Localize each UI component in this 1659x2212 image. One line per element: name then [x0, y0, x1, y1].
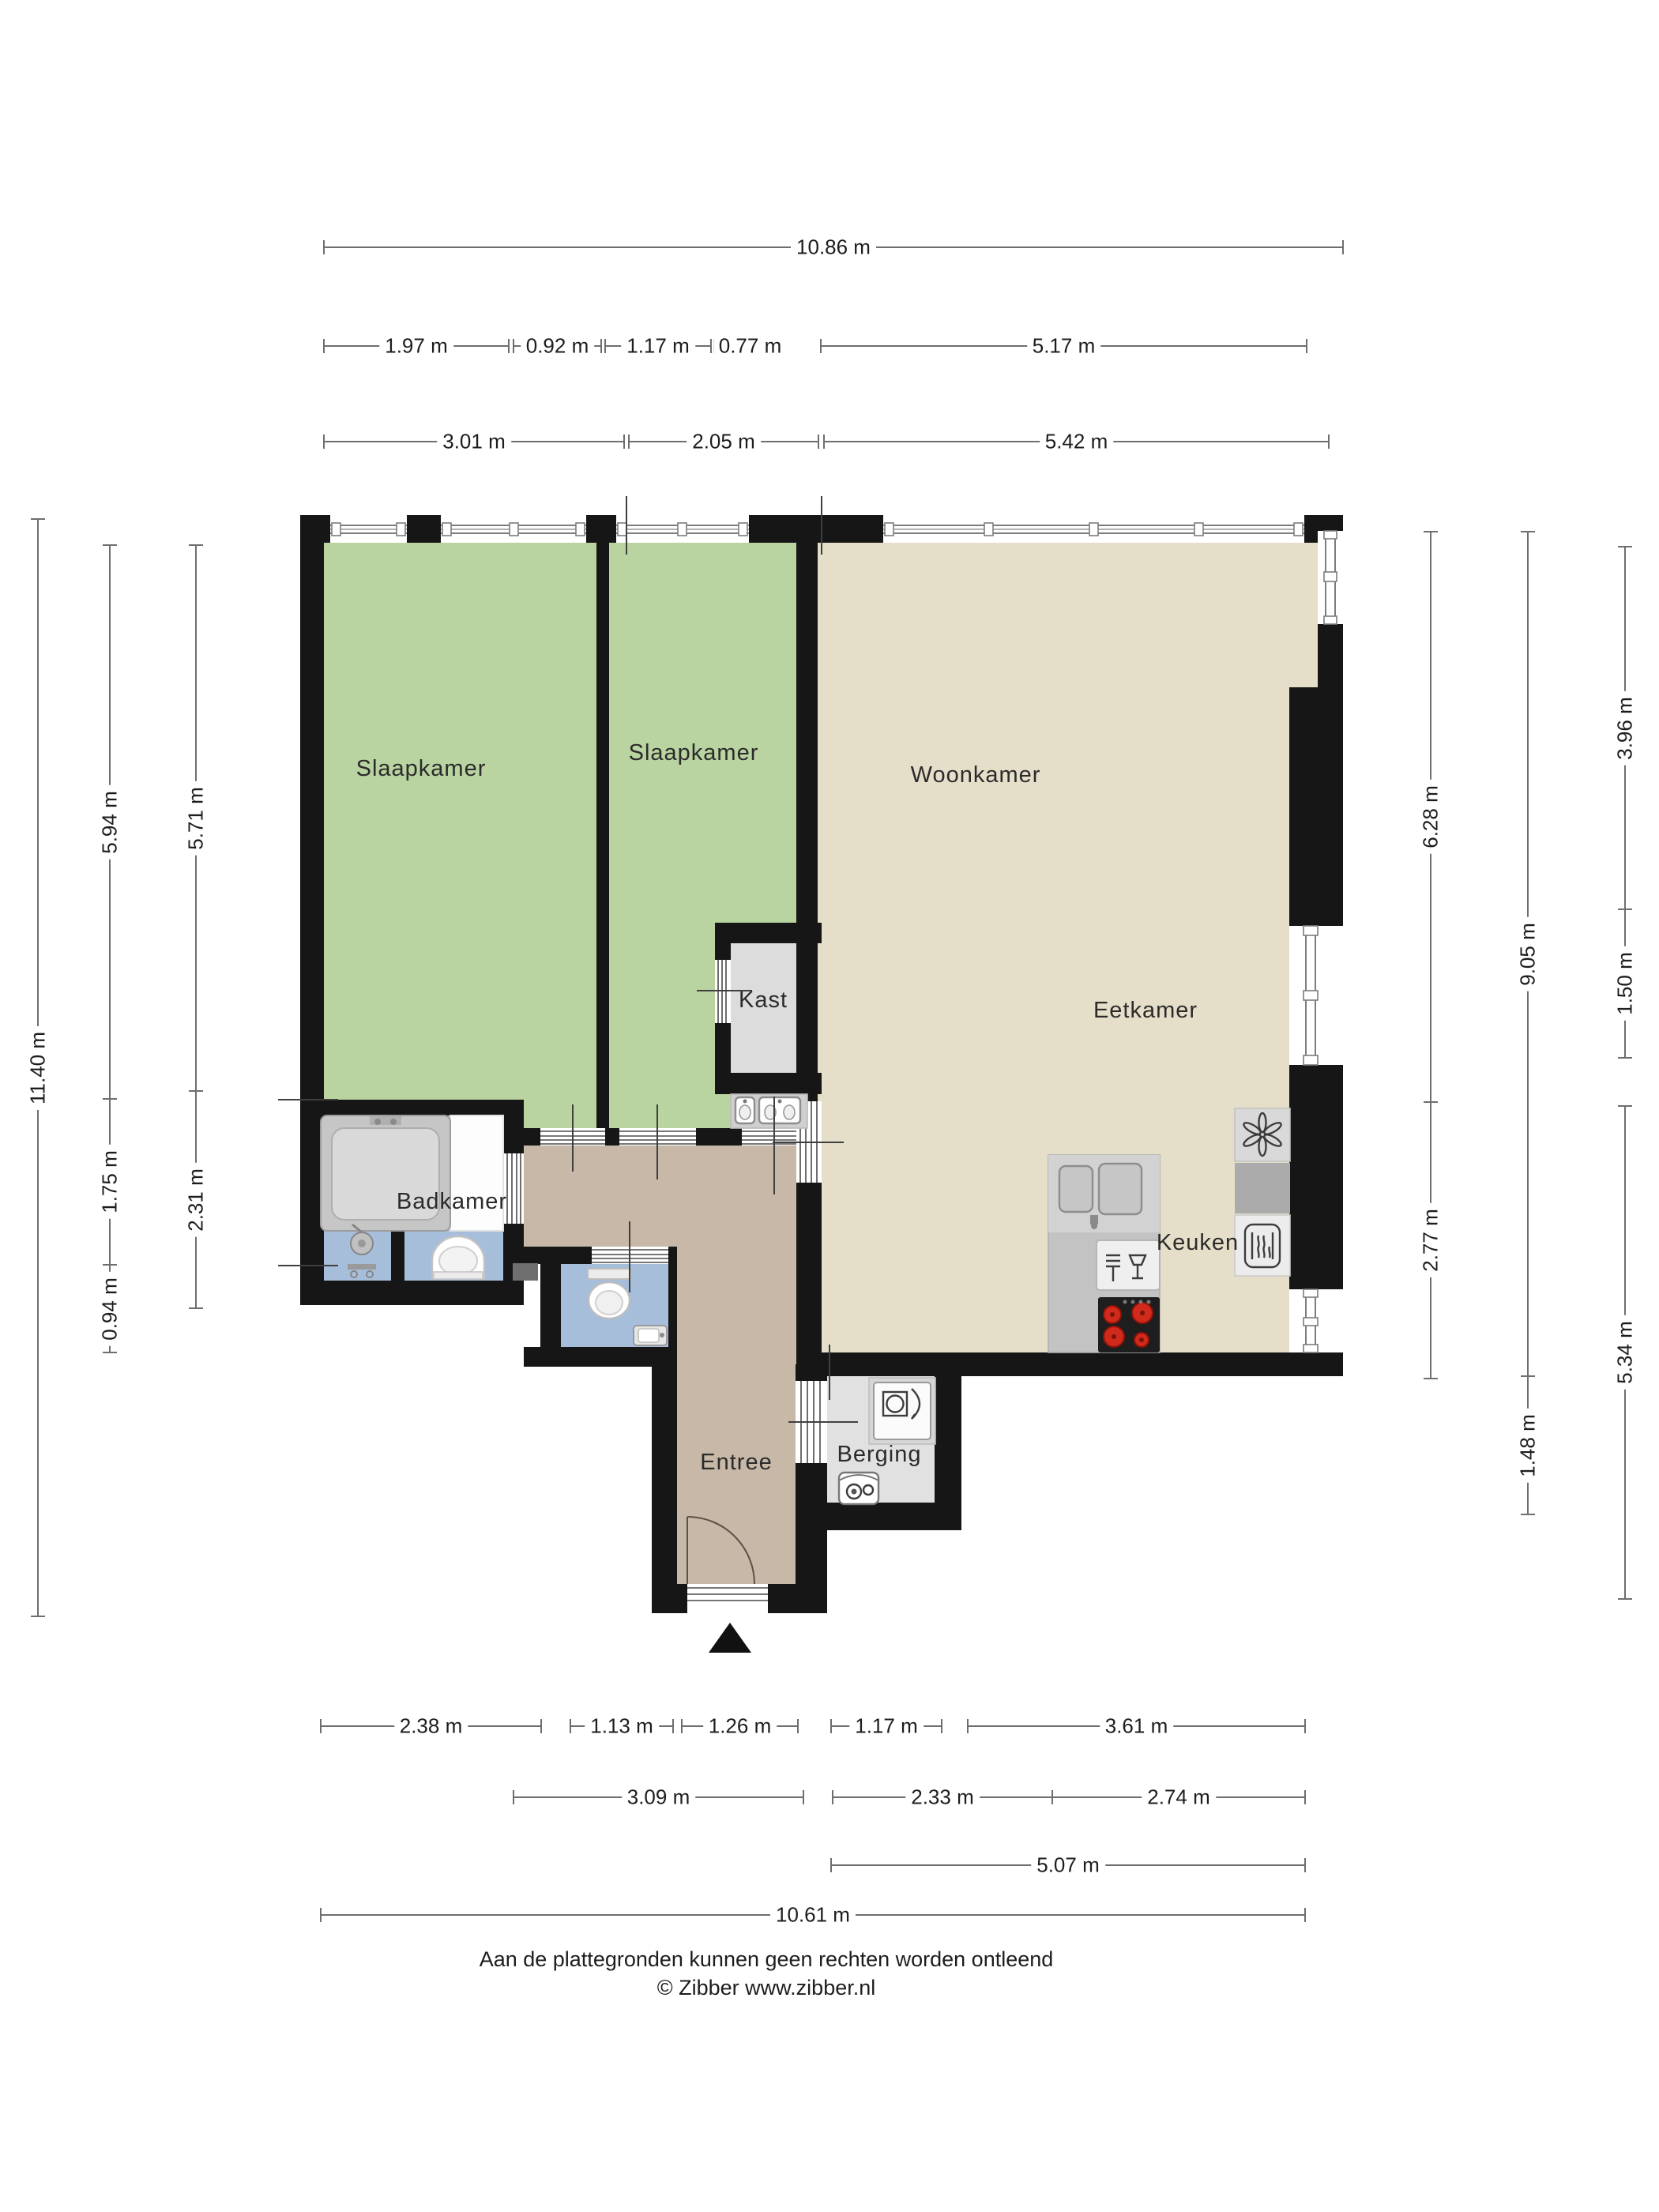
- dimension-label: 0.77 m: [713, 334, 788, 359]
- sink-icon: [634, 1326, 667, 1345]
- dimension-label: 5.42 m: [1040, 430, 1114, 454]
- dimension-segment: 1.17 m: [605, 345, 711, 347]
- dimension-segment: 5.17 m: [821, 345, 1307, 347]
- cooktop-icon: [1098, 1297, 1160, 1352]
- room-label-bedroom1: Slaapkamer: [356, 756, 487, 781]
- dimension-label: 1.97 m: [379, 334, 453, 359]
- dimension-label: 2.38 m: [394, 1714, 468, 1739]
- footer-disclaimer: Aan de plattegronden kunnen geen rechten…: [284, 1945, 1248, 1973]
- dimension-segment: 10.61 m: [321, 1914, 1305, 1916]
- dimension-segment: 3.96 m: [1624, 547, 1626, 909]
- dimension-segment: 3.09 m: [513, 1796, 803, 1798]
- dimension-segment: 3.01 m: [324, 441, 624, 442]
- dimension-segment: 5.94 m: [109, 545, 111, 1099]
- dimension-segment: 5.34 m: [1624, 1106, 1626, 1599]
- dimension-segment: 9.05 m: [1527, 532, 1529, 1376]
- dimension-segment: 0.94 m: [109, 1265, 111, 1352]
- window-icon: [616, 515, 749, 543]
- boiler-icon: [839, 1473, 878, 1504]
- dimension-segment: 2.77 m: [1430, 1102, 1431, 1379]
- dimension-segment: 1.17 m: [831, 1725, 942, 1727]
- window-icon: [883, 515, 1304, 543]
- dimension-segment: 1.13 m: [570, 1725, 673, 1727]
- dimension-segment: 1.75 m: [109, 1099, 111, 1265]
- dimension-segment: 10.86 m: [324, 246, 1343, 248]
- dimension-label: 3.01 m: [437, 430, 511, 454]
- shaft: [513, 1263, 538, 1281]
- floorplan-drawing: Slaapkamer Slaapkamer Woonkamer Eetkamer…: [0, 0, 1659, 2212]
- dimension-label: 5.71 m: [184, 781, 209, 856]
- dimension-label: 2.05 m: [687, 430, 761, 454]
- room-label-living: Woonkamer: [911, 762, 1041, 788]
- dimension-segment: 2.38 m: [321, 1725, 541, 1727]
- dimension-segment: 0.92 m: [513, 345, 601, 347]
- dimension-segment: 2.31 m: [195, 1091, 197, 1308]
- dimension-segment: 2.74 m: [1052, 1796, 1305, 1798]
- kitchen-counter: [1048, 1155, 1160, 1352]
- dimension-label: 6.28 m: [1419, 780, 1443, 854]
- entrance-arrow-icon: [709, 1623, 751, 1653]
- dimension-label: 2.77 m: [1419, 1203, 1443, 1277]
- washing-machine-icon: [869, 1378, 935, 1444]
- dimension-label: 10.61 m: [770, 1903, 856, 1928]
- dimension-label: 3.09 m: [622, 1785, 696, 1810]
- dimension-segment: 1.48 m: [1527, 1376, 1529, 1514]
- dimension-label: 3.96 m: [1613, 691, 1638, 766]
- dimension-segment: 0.77 m: [714, 345, 786, 347]
- bedroom1-floor: [519, 543, 596, 1128]
- toilet-icon: [432, 1236, 484, 1279]
- window-icon: [1289, 926, 1343, 1065]
- dimension-segment: 1.50 m: [1624, 909, 1626, 1058]
- dimension-segment: 5.42 m: [824, 441, 1329, 442]
- dimension-label: 11.40 m: [26, 1025, 51, 1109]
- washbasin-icon: [731, 1094, 807, 1128]
- dimension-segment: 2.33 m: [833, 1796, 1052, 1798]
- dimension-label: 1.75 m: [98, 1145, 122, 1219]
- dimension-label: 5.34 m: [1613, 1315, 1638, 1390]
- bedroom1-floor: [324, 543, 519, 1100]
- dimension-segment: 6.28 m: [1430, 532, 1431, 1102]
- dimension-label: 1.17 m: [621, 334, 695, 359]
- hallway-floor: [524, 1145, 796, 1250]
- dimension-label: 2.31 m: [184, 1163, 209, 1237]
- dimension-label: 1.17 m: [849, 1714, 924, 1739]
- dimension-label: 1.13 m: [585, 1714, 659, 1739]
- room-label-closet: Kast: [739, 987, 788, 1013]
- room-label-kitchen: Keuken: [1157, 1230, 1239, 1255]
- toilet-icon: [588, 1269, 630, 1319]
- dimension-label: 1.26 m: [703, 1714, 777, 1739]
- room-label-dining: Eetkamer: [1093, 998, 1198, 1023]
- footer-copyright: © Zibber www.zibber.nl: [284, 1973, 1248, 2002]
- dimension-label: 3.61 m: [1100, 1714, 1174, 1739]
- room-label-bedroom2: Slaapkamer: [629, 740, 759, 766]
- dimension-label: 10.86 m: [791, 235, 876, 260]
- dimension-label: 1.50 m: [1613, 946, 1638, 1021]
- dimension-label: 1.48 m: [1516, 1409, 1540, 1483]
- dimension-segment: 2.05 m: [629, 441, 818, 442]
- room-label-storage: Berging: [837, 1442, 922, 1467]
- dimension-label: 0.94 m: [98, 1272, 122, 1346]
- dimension-label: 2.74 m: [1142, 1785, 1216, 1810]
- dimension-segment: 1.26 m: [682, 1725, 798, 1727]
- dimension-segment: 11.40 m: [37, 519, 39, 1616]
- dimension-label: 2.33 m: [905, 1785, 980, 1810]
- appliance-column: [1235, 1108, 1290, 1276]
- hallway-floor: [677, 1250, 796, 1364]
- dimension-label: 0.92 m: [521, 334, 595, 359]
- dimension-label: 5.94 m: [98, 785, 122, 860]
- dimension-label: 9.05 m: [1516, 917, 1540, 991]
- dimension-segment: 1.97 m: [324, 345, 509, 347]
- window-icon: [330, 515, 407, 543]
- window-icon: [1318, 531, 1343, 624]
- window-icon: [441, 515, 586, 543]
- room-label-bathroom: Badkamer: [397, 1189, 507, 1214]
- dimension-segment: 5.71 m: [195, 545, 197, 1091]
- dimension-label: 5.07 m: [1031, 1853, 1105, 1878]
- dishwasher-icon: [1097, 1240, 1160, 1290]
- dimension-segment: 5.07 m: [831, 1864, 1305, 1866]
- room-label-entrance: Entree: [700, 1450, 772, 1475]
- dimension-segment: 3.61 m: [968, 1725, 1305, 1727]
- floorplan-page: Slaapkamer Slaapkamer Woonkamer Eetkamer…: [0, 0, 1659, 2212]
- footer: Aan de plattegronden kunnen geen rechten…: [284, 1945, 1248, 2002]
- window-icon: [1289, 1289, 1343, 1352]
- dimension-label: 5.17 m: [1027, 334, 1101, 359]
